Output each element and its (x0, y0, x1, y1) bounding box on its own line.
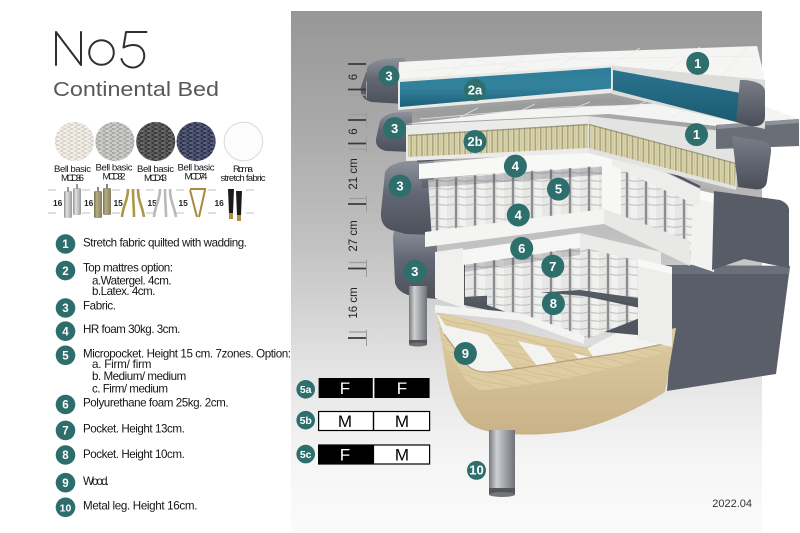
svg-text:Pocket. Height 13cm.: Pocket. Height 13cm. (83, 423, 185, 436)
svg-text:1: 1 (694, 56, 701, 71)
svg-text:b.Latex. 4cm.: b.Latex. 4cm. (92, 285, 155, 298)
svg-text:2022.04: 2022.04 (712, 498, 752, 510)
svg-text:F: F (340, 379, 350, 398)
svg-text:16 cm: 16 cm (348, 287, 360, 318)
svg-text:6: 6 (62, 400, 68, 412)
svg-text:2: 2 (62, 266, 68, 278)
svg-text:Fabric.: Fabric. (83, 300, 116, 313)
svg-text:F: F (397, 379, 407, 398)
svg-text:Wood.: Wood. (83, 475, 109, 488)
svg-text:2a: 2a (468, 83, 483, 98)
svg-text:7: 7 (62, 426, 68, 438)
svg-text:M: M (338, 412, 352, 431)
svg-text:M: M (395, 412, 409, 431)
svg-text:27 cm: 27 cm (348, 220, 360, 251)
svg-text:5c: 5c (300, 449, 312, 461)
svg-text:2b: 2b (467, 134, 482, 149)
svg-text:5: 5 (555, 182, 562, 197)
svg-text:Stretch fabric quilted with wa: Stretch fabric quilted with wadding. (83, 236, 247, 249)
svg-text:4: 4 (512, 159, 520, 174)
svg-text:3: 3 (411, 264, 418, 279)
svg-text:4: 4 (515, 208, 523, 223)
svg-text:5: 5 (62, 351, 69, 363)
svg-text:3: 3 (391, 121, 398, 136)
svg-text:Polyurethane foam 25kg. 2cm.: Polyurethane foam 25kg. 2cm. (83, 397, 229, 410)
svg-text:Pocket. Height 10cm.: Pocket. Height 10cm. (83, 448, 185, 461)
svg-text:4: 4 (62, 326, 69, 338)
svg-text:3: 3 (385, 69, 392, 84)
svg-text:7: 7 (549, 259, 556, 274)
svg-text:F: F (340, 446, 350, 465)
svg-text:6: 6 (348, 128, 360, 134)
svg-text:6: 6 (518, 241, 525, 256)
svg-text:9: 9 (462, 346, 469, 361)
svg-text:HR foam 30kg. 3cm.: HR foam 30kg. 3cm. (83, 323, 180, 336)
svg-text:c. Firm/ medium: c. Firm/ medium (92, 382, 168, 395)
svg-text:3: 3 (62, 303, 68, 315)
svg-text:8: 8 (550, 296, 557, 311)
svg-text:a. Firm/ firm: a. Firm/ firm (92, 358, 151, 371)
svg-text:1: 1 (693, 127, 700, 142)
svg-text:1: 1 (62, 239, 69, 251)
svg-text:8: 8 (62, 450, 69, 462)
svg-text:3: 3 (396, 179, 403, 194)
svg-text:M: M (395, 446, 409, 465)
svg-text:9: 9 (62, 478, 68, 490)
svg-text:10: 10 (469, 463, 483, 478)
svg-text:21 cm: 21 cm (348, 158, 360, 189)
svg-text:Top mattres option:: Top mattres option: (83, 262, 173, 275)
svg-text:5a: 5a (300, 384, 312, 396)
svg-text:b. Medium/ medium: b. Medium/ medium (92, 370, 186, 383)
svg-text:6: 6 (348, 74, 360, 80)
svg-text:Metal leg. Height 16cm.: Metal leg. Height 16cm. (83, 500, 197, 513)
svg-text:10: 10 (60, 503, 72, 515)
svg-text:5b: 5b (300, 415, 312, 427)
